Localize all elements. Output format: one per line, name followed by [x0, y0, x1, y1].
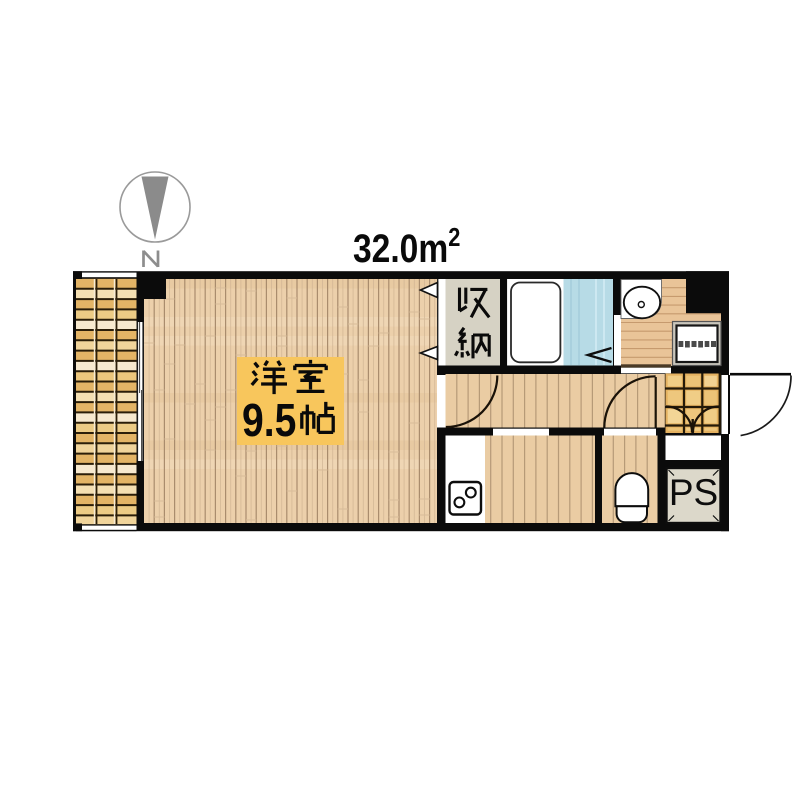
svg-text:9.5: 9.5 [242, 395, 296, 447]
svg-text:PS: PS [669, 472, 718, 513]
svg-text:32.0m2: 32.0m2 [353, 223, 460, 270]
